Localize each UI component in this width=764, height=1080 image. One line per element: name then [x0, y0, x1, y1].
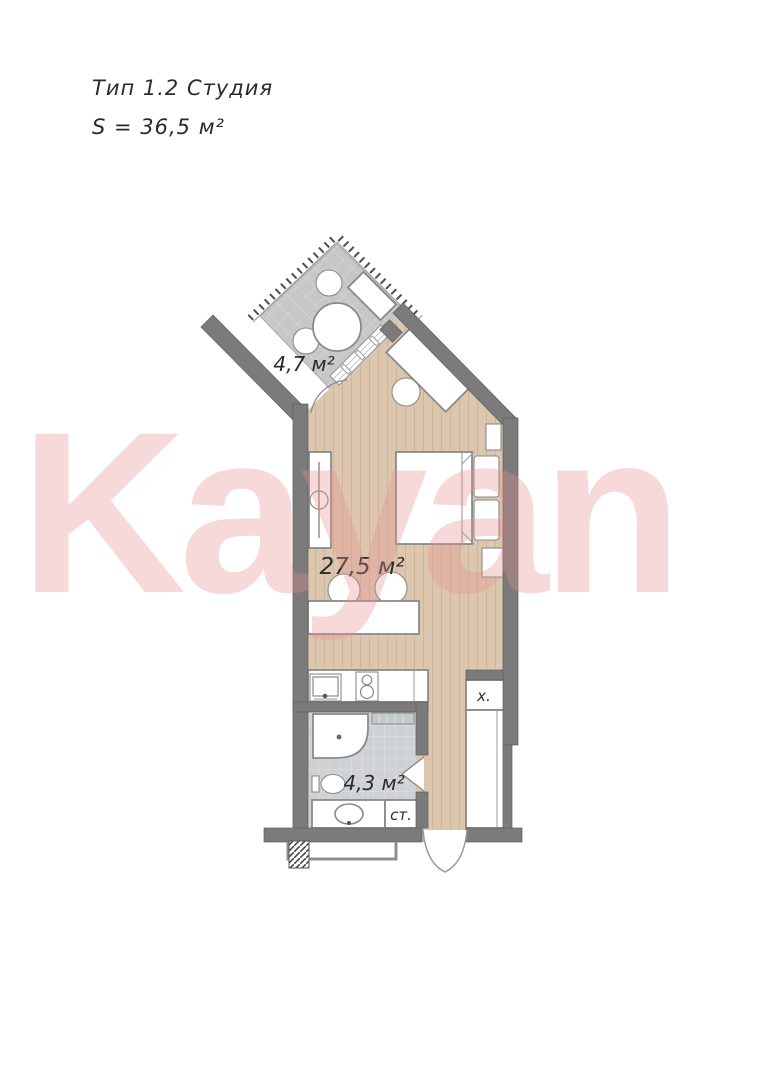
bathroom: ст. 4,3 м² — [302, 712, 424, 828]
entrance-door-arc — [423, 830, 467, 872]
plan-type-title: Тип 1.2 Студия — [92, 76, 273, 100]
closet-label: х. — [476, 687, 491, 705]
right-wall-upper — [503, 418, 518, 745]
toilet — [312, 775, 345, 794]
studio-area-label: 27,5 м² — [319, 554, 404, 580]
balcony-table — [313, 303, 361, 351]
vanity-faucet — [347, 821, 351, 825]
bed-pillow — [474, 500, 499, 540]
nightstand — [486, 424, 501, 450]
right-wall-lower — [503, 745, 512, 828]
sink-faucet — [323, 694, 328, 699]
wardrobe-mirror-cabinet — [309, 452, 331, 548]
vanity — [312, 800, 385, 828]
kitchen-sink — [310, 674, 341, 701]
stove-body — [356, 672, 378, 701]
nightstand — [482, 548, 503, 577]
bottom-wall-left — [264, 828, 422, 842]
kitchen-stove — [356, 672, 378, 701]
toilet-bowl — [321, 775, 345, 794]
bathroom-area-label: 4,3 м² — [343, 771, 404, 795]
kitchen — [308, 670, 428, 702]
bar-table — [308, 601, 419, 634]
balcony-chair — [316, 270, 342, 296]
bathroom-right-wall-lower — [416, 792, 428, 828]
left-wall — [293, 404, 308, 842]
towel-radiator — [372, 713, 414, 724]
washer-label: ст. — [390, 806, 412, 824]
bottom-wall-right — [466, 828, 522, 842]
bathroom-top-wall — [293, 702, 428, 712]
bathroom-right-wall-upper — [416, 702, 428, 755]
balcony-area-label: 4,7 м² — [273, 352, 334, 376]
floorplan-drawing: 4,7 м² — [0, 0, 764, 1080]
plan-total-area: S = 36,5 м² — [92, 115, 225, 139]
washing-machine: ст. — [385, 800, 417, 828]
toilet-tank — [312, 776, 319, 792]
closet-column: х. — [466, 680, 504, 828]
hall-wardrobe — [466, 710, 504, 828]
bed-mattress — [396, 452, 472, 544]
bed-pillow — [474, 456, 499, 497]
closet-top-wall-stub — [466, 670, 503, 680]
section-hatch-block — [289, 841, 309, 868]
radiator-body — [372, 713, 414, 724]
shower-drain — [337, 735, 342, 740]
floorplan-page: Тип 1.2 Студия S = 36,5 м² Kayan — [0, 0, 764, 1080]
